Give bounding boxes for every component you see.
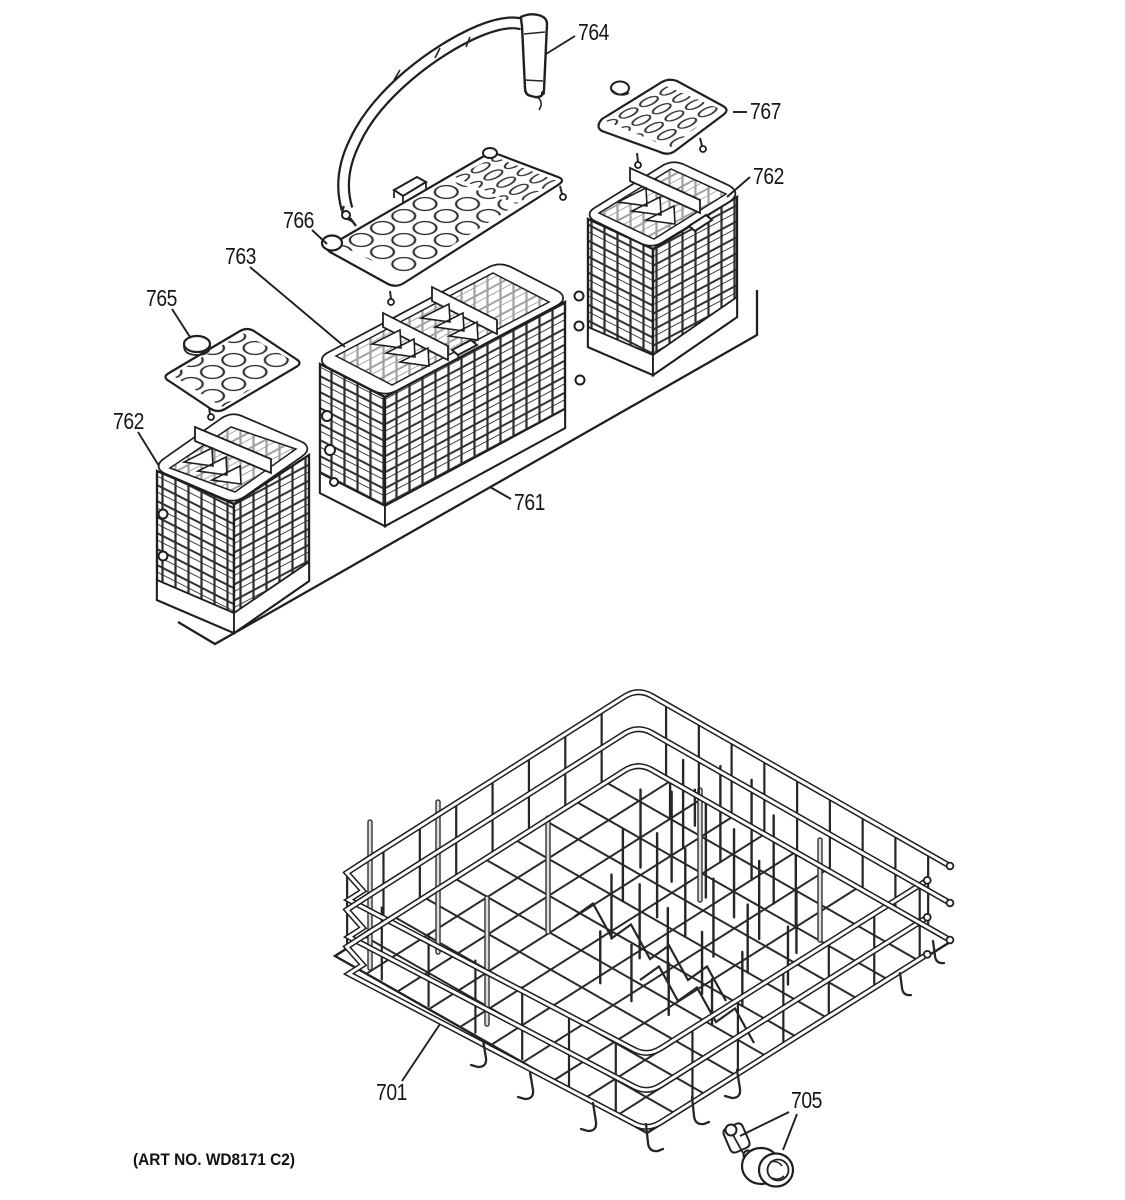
handle-right-leg <box>521 14 547 97</box>
callout-701: 701 <box>376 1079 407 1105</box>
leader-765 <box>172 309 190 337</box>
rack-hook <box>900 973 911 995</box>
callout-765: 765 <box>146 285 177 311</box>
leader-762-left <box>138 432 159 466</box>
leader-705-wheel <box>783 1114 797 1150</box>
exploded-parts-diagram: 764 767 762 766 763 765 762 761 701 705 … <box>0 0 1125 1200</box>
basket-cover-765 <box>166 329 300 420</box>
rack-hook <box>518 1072 533 1099</box>
leader-763 <box>250 267 345 347</box>
rack-hook <box>581 1103 596 1131</box>
leader-761 <box>490 487 511 499</box>
callout-763: 763 <box>225 243 256 269</box>
leader-764 <box>546 36 575 54</box>
small-basket-762-right <box>575 165 738 384</box>
basket-cover-767 <box>599 80 727 168</box>
art-number: (ART NO. WD8171 C2) <box>133 1150 295 1169</box>
callout-705: 705 <box>791 1087 822 1113</box>
silverware-basket-assembly <box>157 14 757 644</box>
callout-767: 767 <box>750 98 781 124</box>
leader-701 <box>402 1024 440 1081</box>
callout-766: 766 <box>283 207 314 233</box>
handle-foot <box>342 211 350 219</box>
rack-hook <box>933 941 944 963</box>
callout-761: 761 <box>514 489 545 515</box>
cover-knob <box>184 336 210 352</box>
large-basket-763 <box>320 268 565 527</box>
callout-764: 764 <box>578 19 610 45</box>
lower-rack-701 <box>335 692 953 1151</box>
leader-705-clip <box>740 1112 789 1136</box>
roller-assembly-705 <box>723 1123 793 1186</box>
small-basket-762-left <box>157 417 309 633</box>
callout-762-left: 762 <box>113 408 144 434</box>
callout-762-right: 762 <box>753 163 784 189</box>
